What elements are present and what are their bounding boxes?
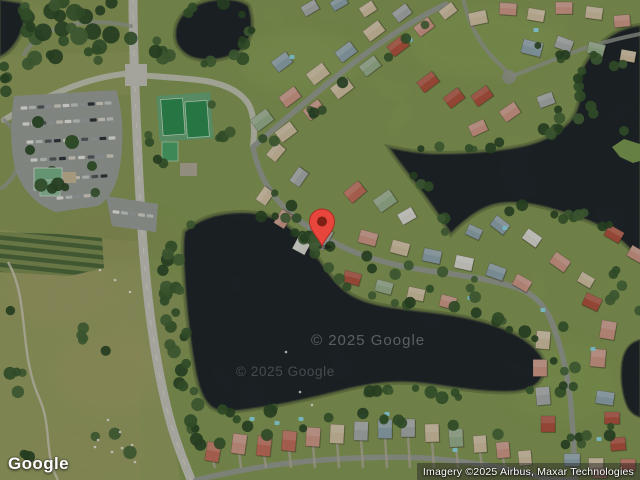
google-logo[interactable]: Google [8, 454, 69, 474]
attribution-text: Imagery ©2025 Airbus, Maxar Technologies [423, 466, 634, 478]
attribution-bar: Imagery ©2025 Airbus, Maxar Technologies [417, 463, 640, 480]
location-pin-icon[interactable] [296, 200, 348, 252]
map-viewport[interactable]: © 2025 Google © 2025 Google Google Image… [0, 0, 640, 480]
